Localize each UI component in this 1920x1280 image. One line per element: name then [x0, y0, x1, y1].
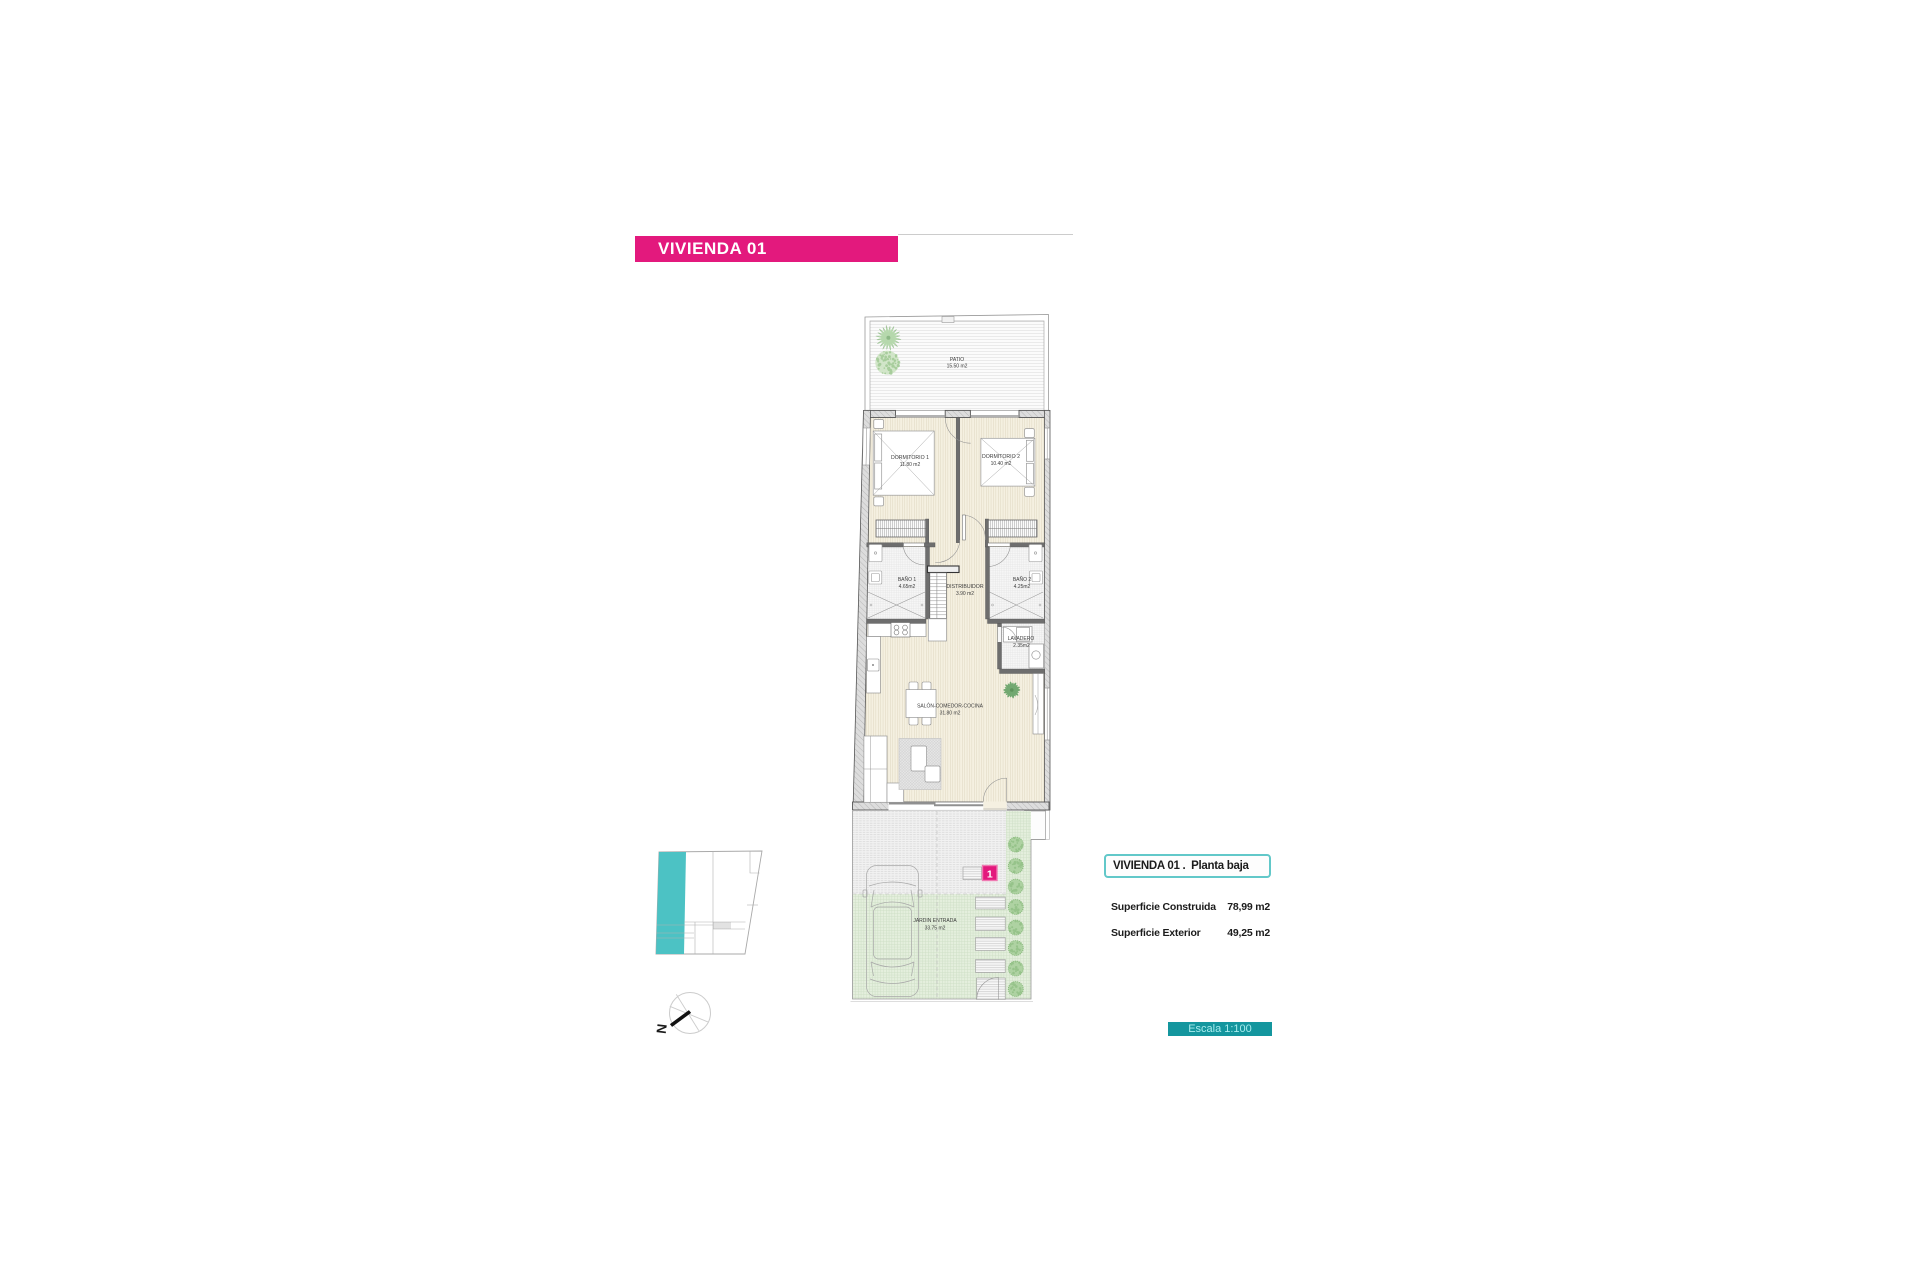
svg-text:33.75 m2: 33.75 m2	[925, 926, 946, 932]
svg-text:DORMITORIO 1: DORMITORIO 1	[891, 455, 929, 461]
svg-text:10.40 m2: 10.40 m2	[991, 461, 1012, 467]
svg-text:1: 1	[987, 869, 993, 881]
svg-text:4.65m2: 4.65m2	[899, 584, 916, 590]
svg-text:DORMITORIO 2: DORMITORIO 2	[982, 454, 1020, 460]
svg-text:SALÓN-COMEDOR-COCINA: SALÓN-COMEDOR-COCINA	[917, 703, 984, 710]
svg-text:JARDIN ENTRADA: JARDIN ENTRADA	[913, 918, 957, 924]
svg-text:LAVADERO: LAVADERO	[1008, 636, 1035, 642]
svg-text:BAÑO 2: BAÑO 2	[1013, 576, 1032, 583]
svg-text:31.80 m2: 31.80 m2	[940, 711, 961, 717]
svg-text:15.50 m2: 15.50 m2	[947, 364, 968, 370]
svg-text:BAÑO 1: BAÑO 1	[898, 576, 917, 583]
svg-text:N: N	[653, 1023, 669, 1035]
svg-text:3.90 m2: 3.90 m2	[956, 591, 974, 597]
svg-text:2.35m2: 2.35m2	[1013, 643, 1030, 649]
svg-text:PATIO: PATIO	[950, 357, 964, 363]
svg-text:DISTRIBUIDOR: DISTRIBUIDOR	[946, 584, 983, 590]
svg-text:4.25m2: 4.25m2	[1014, 584, 1031, 590]
svg-text:11.80 m2: 11.80 m2	[900, 462, 921, 468]
